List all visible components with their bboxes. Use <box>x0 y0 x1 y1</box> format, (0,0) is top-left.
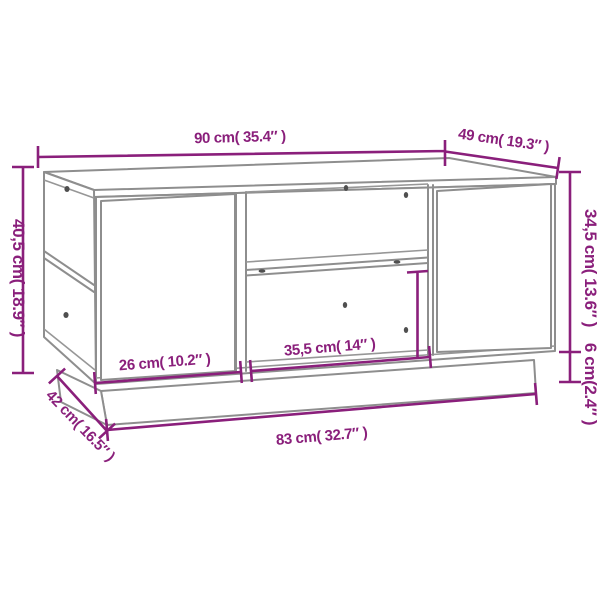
left-door <box>101 194 235 380</box>
dimension-cabinet-height-label: 34,5 cm( 13.6″ ) <box>581 209 600 327</box>
dimension-top-depth-label: 49 cm( 19.3″ ) <box>457 126 551 156</box>
dimension-overall-height-label: 40,5 cm( 18.9″ ) <box>9 219 28 337</box>
right-door <box>437 184 551 352</box>
dimension-overall-height: 40,5 cm( 18.9″ ) <box>9 167 34 373</box>
dimension-plinth-height: 6 cm(2.4″ ) <box>559 343 600 425</box>
dimension-plinth-width-label: 83 cm( 32.7″ ) <box>275 424 368 449</box>
dimension-top-width-label: 90 cm( 35.4″ ) <box>194 128 286 147</box>
dimension-diagram-canvas: 90 cm( 35.4″ ) 49 cm( 19.3″ ) 40,5 cm( 1… <box>0 0 600 600</box>
product-dimension-image: 90 cm( 35.4″ ) 49 cm( 19.3″ ) 40,5 cm( 1… <box>0 0 600 600</box>
dimension-plinth-height-label: 6 cm(2.4″ ) <box>581 343 600 425</box>
furniture-drawing <box>44 158 556 425</box>
side-panel <box>44 172 96 384</box>
dimension-cabinet-height: 34,5 cm( 13.6″ ) <box>559 172 600 352</box>
